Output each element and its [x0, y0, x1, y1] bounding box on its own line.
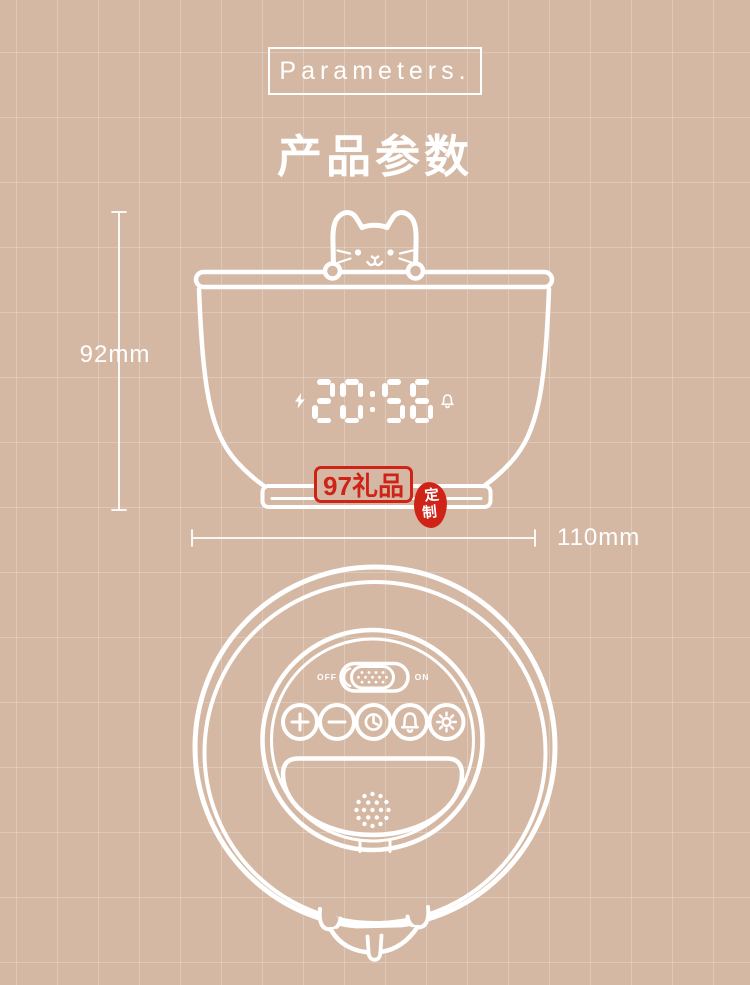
knob-grip-dots: [357, 671, 388, 683]
speaker-holes: [354, 792, 390, 828]
height-dimension-label: 92mm: [75, 341, 155, 369]
bell-icon: [402, 714, 417, 732]
seal-char-1: 定: [424, 487, 440, 506]
power-switch: [341, 664, 408, 692]
plus-icon: [292, 714, 308, 730]
cat-peek-bottom: [320, 907, 429, 960]
cat-ear-right-bottom: [408, 907, 429, 927]
cat-paw-right: [408, 264, 423, 279]
bowl-body-right: [484, 289, 549, 486]
bowl-body-left: [199, 289, 264, 486]
clock-icon: [366, 714, 381, 729]
outer-inner-ring: [205, 582, 546, 923]
switch-off-label: OFF: [312, 672, 342, 682]
cat-paw-left: [325, 264, 340, 279]
watermark-brand-box: 97礼品: [314, 466, 413, 503]
charging-bolt-icon: [295, 393, 305, 409]
alarm-button: [393, 705, 427, 739]
bowl-rim: [196, 272, 552, 287]
cat-head-front: [333, 213, 416, 269]
cat-nose: [372, 257, 378, 259]
clock-digit: [340, 379, 363, 423]
clock-digit: [312, 379, 335, 423]
cat-eye-left: [355, 249, 361, 255]
width-dimension-label: 110mm: [557, 524, 640, 552]
cat-tail: [368, 936, 382, 960]
seal-char-2: 制: [422, 504, 438, 523]
bottom-view: [195, 567, 555, 960]
clock-colon: [368, 379, 377, 423]
control-buttons: [283, 705, 464, 739]
cat-ear-left-bottom: [320, 909, 341, 929]
cat-eye-right: [387, 249, 393, 255]
minus-button: [320, 705, 354, 739]
clock-digit: [410, 379, 433, 423]
parameters-tag-box: Parameters.: [268, 47, 482, 95]
brightness-button: [430, 705, 464, 739]
speaker-recess: [283, 759, 462, 852]
switch-on-label: ON: [407, 672, 437, 682]
clock-time: [312, 379, 433, 423]
clock-digit: [382, 379, 405, 423]
plus-button: [283, 705, 317, 739]
product-parameters-page: Parameters. 产品参数 92mm 110mm 97礼品 定 制 OFF…: [0, 0, 750, 985]
time-set-button: [357, 705, 391, 739]
page-title: 产品参数: [0, 120, 750, 185]
width-dimension-line: [192, 530, 535, 546]
parameters-tag-label: Parameters.: [279, 57, 470, 86]
outer-silhouette-circle: [195, 567, 555, 927]
alarm-indicator-icon: [440, 393, 455, 409]
clock-display: [295, 379, 455, 423]
brightness-sun-icon: [437, 713, 456, 732]
cat-mouth: [368, 262, 383, 265]
watermark-brand-text: 97礼品: [323, 466, 404, 503]
